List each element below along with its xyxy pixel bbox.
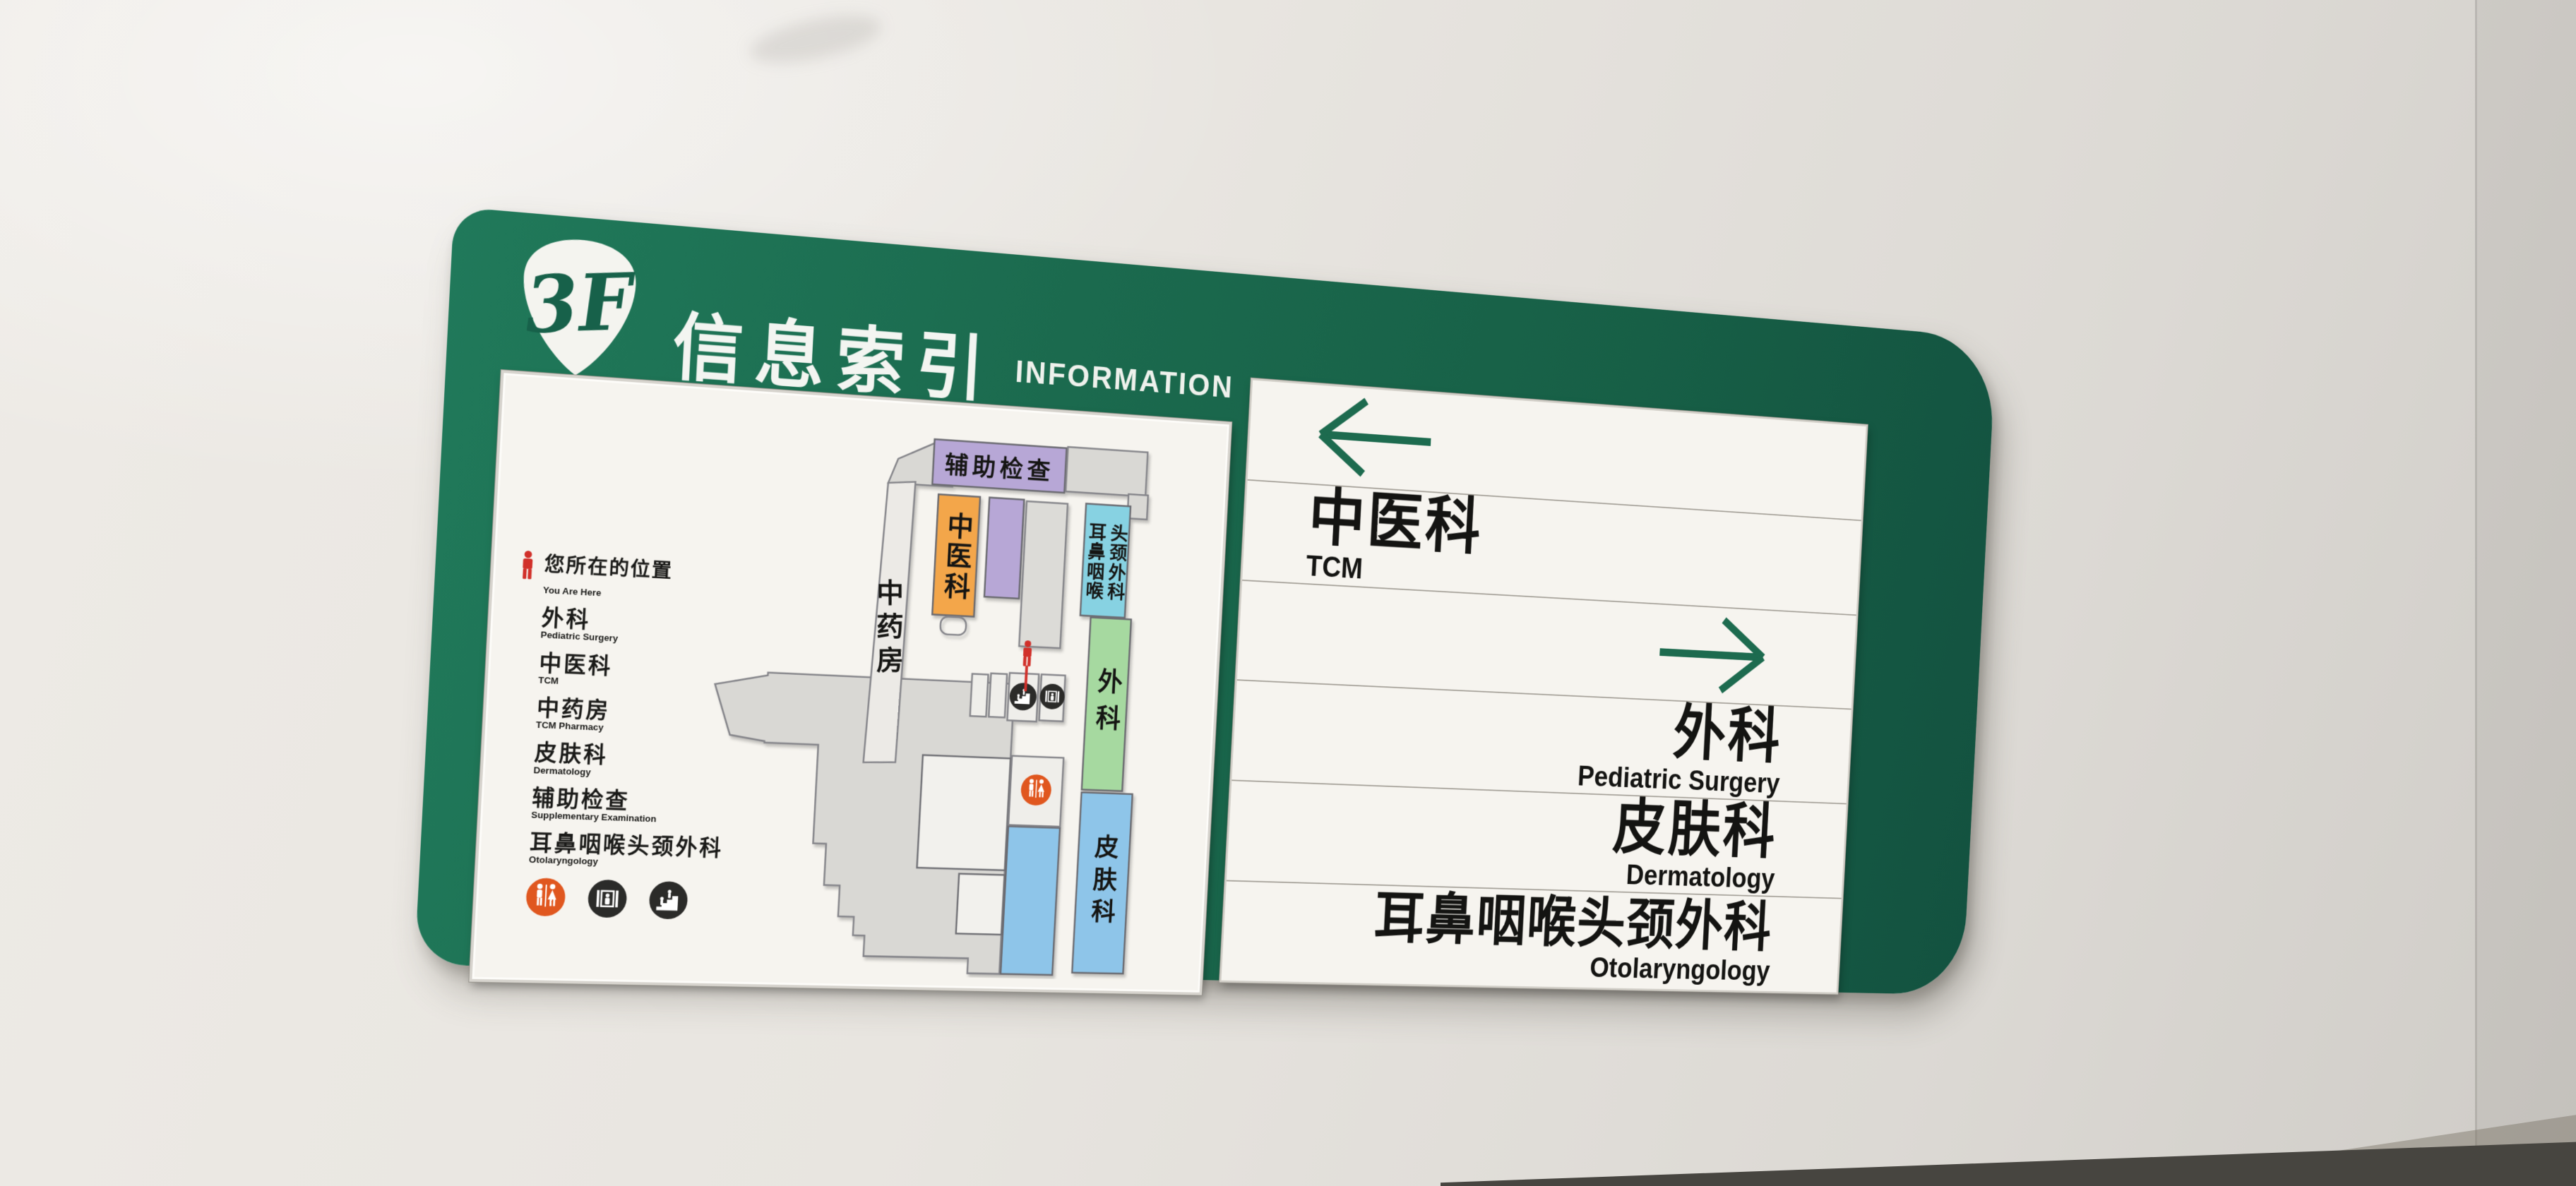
map-label-ent-right: 头颈外科 [1102, 509, 1130, 616]
map-topright-block [1066, 447, 1147, 496]
you-are-here-icon [519, 548, 537, 582]
map-legend: 您所在的位置 You Are Here 外科 Pediatric Surgery… [504, 548, 838, 873]
floor-number: 3F [510, 256, 648, 352]
directory-row-otolaryngology: 耳鼻咽喉头颈外科 Otolaryngology [1222, 880, 1842, 993]
map-blue-strip [1001, 826, 1060, 975]
legend-entry: 中医科 TCM [538, 652, 833, 697]
arrow-right-icon [1652, 612, 1775, 697]
wall-corner [2475, 0, 2576, 1186]
floor-badge: 3F [508, 229, 649, 387]
toilet-icon [525, 877, 567, 917]
map-label-surgery: 外科 [1082, 621, 1131, 787]
elevator-icon [586, 878, 628, 918]
facility-icons [525, 877, 689, 921]
dept-name-en: Otolaryngology [1589, 954, 1770, 987]
photo-scene: 3F 信息索引 INFORMATION [0, 0, 2576, 1186]
map-small-block-1 [970, 673, 989, 717]
map-label-derm: 皮肤科 [1073, 795, 1133, 969]
legend-entry: 皮肤科 Dermatology [533, 742, 828, 786]
stairs-icon [648, 880, 689, 921]
wall-smudge [746, 6, 885, 72]
legend-entry: 外科 Pediatric Surgery [540, 607, 835, 654]
map-gray-block [1019, 501, 1068, 648]
map-tcm-door [940, 616, 966, 635]
sign-title-en: INFORMATION [1015, 353, 1235, 405]
map-room-b [956, 874, 1005, 935]
dept-name-en: Pediatric Surgery [1577, 762, 1780, 799]
map-purple-block [984, 498, 1024, 599]
dept-name-zh: 皮肤科 [1611, 798, 1779, 863]
dept-name-en: Dermatology [1626, 861, 1775, 894]
dept-name-zh: 中医科 [1307, 486, 1484, 559]
floor-map: 辅助检查 中药房 中医科 耳鼻咽喉 头颈外科 外科 皮肤科 您所在的位置 You… [478, 379, 1225, 982]
legend-entry: 中药房 TCM Pharmacy [536, 697, 830, 741]
dept-name-zh: 外科 [1671, 703, 1783, 767]
arrow-left-icon [1308, 393, 1438, 484]
floor-edge [1441, 1130, 2576, 1186]
map-room-a [917, 755, 1011, 870]
dept-name-en: TCM [1306, 551, 1364, 584]
legend-en: Pediatric Surgery [540, 630, 619, 644]
floor-map-panel: 辅助检查 中药房 中医科 耳鼻咽喉 头颈外科 外科 皮肤科 您所在的位置 You… [469, 370, 1232, 995]
legend-entry: 辅助检查 Supplementary Examination [531, 786, 826, 829]
sign-board: 3F 信息索引 INFORMATION [415, 207, 1997, 995]
dept-name-zh: 耳鼻咽喉头颈外科 [1373, 890, 1774, 955]
map-label-aux: 辅助检查 [932, 439, 1066, 493]
directory-panel: 中医科 TCM 外科 Pediatric Surgery 皮肤科 Dermat [1220, 378, 1868, 995]
map-label-pharmacy: 中药房 [869, 501, 906, 756]
map-label-tcm: 中医科 [932, 497, 980, 616]
map-small-block-2 [989, 673, 1007, 718]
